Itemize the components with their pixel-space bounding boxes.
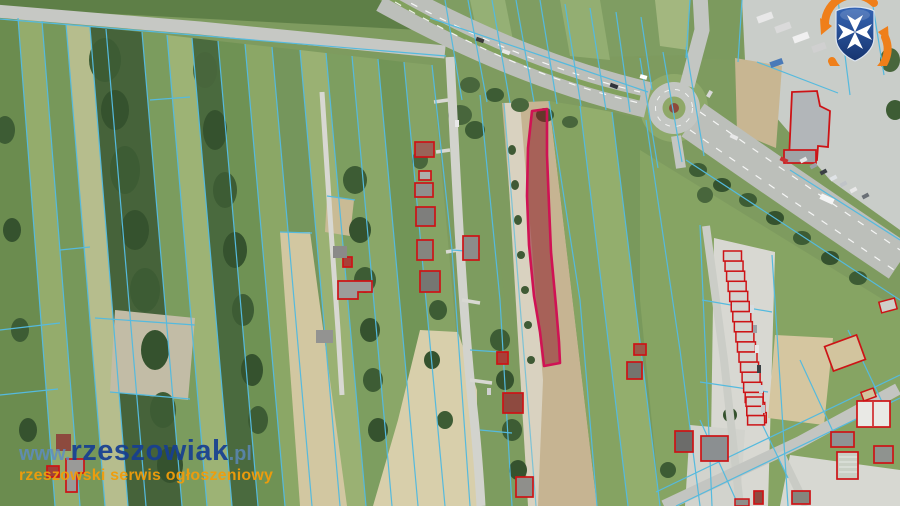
garage-row: [733, 312, 751, 322]
building-outline: [874, 446, 893, 463]
road: [436, 150, 450, 152]
building-outline: [627, 362, 642, 379]
tree-cluster: [429, 300, 447, 320]
greenhouse: [837, 452, 858, 479]
tree-cluster: [213, 172, 237, 208]
tree-cluster: [511, 98, 529, 112]
garage-row: [736, 332, 754, 342]
building-outline: [516, 477, 533, 497]
tree-cluster: [521, 286, 529, 294]
tree-cluster: [514, 215, 522, 225]
garage-row: [741, 362, 759, 372]
building-outline: [735, 499, 749, 506]
building-outline: [784, 150, 816, 163]
building-outline: [343, 257, 352, 267]
building-outline: [416, 207, 435, 226]
tree-cluster: [527, 356, 535, 364]
garage-row: [734, 322, 752, 332]
tree-cluster: [232, 294, 254, 326]
garage-row: [737, 342, 755, 352]
building-outline: [754, 491, 763, 504]
building-outline: [701, 436, 728, 461]
aerial-map[interactable]: [0, 0, 900, 506]
building-outline: [420, 271, 440, 292]
garage-row: [724, 251, 742, 261]
building-outline: [792, 491, 810, 504]
car: [757, 365, 761, 373]
garage-row: [731, 302, 749, 312]
tree-cluster: [511, 180, 519, 190]
building-outline: [417, 240, 433, 260]
building-outline: [463, 236, 479, 260]
car: [750, 305, 754, 313]
tree-cluster: [502, 419, 522, 441]
rzeszowiak-logo: [818, 0, 892, 66]
tree-cluster: [11, 318, 29, 342]
building-outline: [831, 432, 854, 447]
tree-cluster: [193, 52, 217, 88]
car: [455, 120, 459, 127]
tree-cluster: [524, 321, 532, 329]
building-outline: [503, 393, 523, 413]
tree-cluster: [101, 90, 129, 130]
tree-cluster: [130, 268, 160, 312]
car: [755, 345, 759, 353]
building-outline: [415, 183, 433, 197]
building-outline: [415, 142, 434, 157]
garage-row: [746, 397, 763, 406]
tree-cluster: [465, 121, 485, 139]
tree-cluster: [490, 329, 510, 351]
garage-row: [748, 416, 765, 425]
garage-row: [730, 291, 748, 301]
field-strip: [655, 0, 690, 50]
building-outline: [497, 352, 508, 364]
tree-cluster: [19, 418, 37, 442]
tree-cluster: [697, 187, 713, 203]
garage-row: [728, 281, 746, 291]
tree-cluster: [121, 210, 149, 250]
tree-cluster: [508, 145, 516, 155]
car: [753, 325, 757, 333]
tree-cluster: [460, 77, 480, 93]
garage-row: [725, 261, 743, 271]
car: [761, 405, 765, 413]
building-outline: [419, 171, 431, 180]
building-outline: [47, 466, 59, 477]
tree-cluster: [486, 88, 504, 102]
tree-cluster: [793, 231, 811, 245]
building-outline: [316, 330, 333, 343]
building-outline: [675, 431, 693, 452]
tree-cluster: [517, 251, 525, 259]
garage-row: [744, 382, 762, 392]
garage-row: [739, 352, 757, 362]
tree-cluster: [241, 354, 263, 386]
road: [669, 103, 679, 113]
building-outline: [634, 344, 646, 355]
tree-cluster: [110, 146, 140, 194]
garage-row: [727, 271, 745, 281]
building-outline: [333, 246, 347, 258]
garage-row: [742, 372, 760, 382]
building-outline: [56, 434, 71, 451]
tree-cluster: [660, 462, 676, 478]
tree-cluster: [141, 330, 169, 370]
tree-cluster: [689, 163, 707, 177]
map-viewport: www.rzeszowiak.pl rzeszowski serwis ogło…: [0, 0, 900, 506]
tree-cluster: [562, 116, 578, 128]
tree-cluster: [437, 411, 453, 429]
logo-gloss: [840, 9, 870, 21]
car: [759, 385, 763, 393]
tree-cluster: [203, 110, 227, 150]
car: [487, 388, 491, 395]
tree-cluster: [3, 218, 21, 242]
